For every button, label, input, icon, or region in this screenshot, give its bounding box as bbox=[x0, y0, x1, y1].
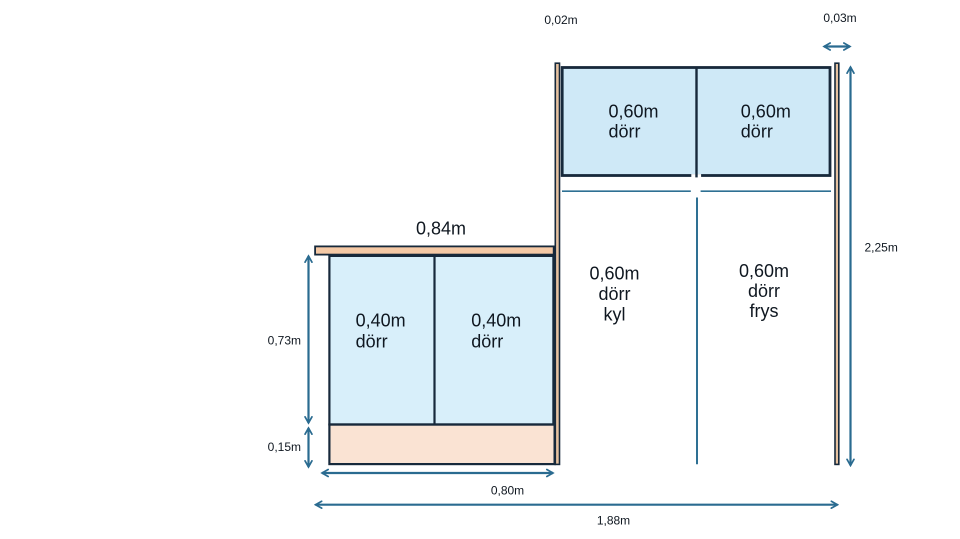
svg-text:dörr: dörr bbox=[609, 122, 641, 142]
svg-text:frys: frys bbox=[750, 301, 779, 321]
svg-text:0,60m: 0,60m bbox=[609, 101, 659, 121]
svg-text:0,73m: 0,73m bbox=[268, 333, 301, 347]
svg-text:0,40m: 0,40m bbox=[356, 311, 406, 331]
svg-text:0,80m: 0,80m bbox=[491, 484, 524, 498]
svg-text:0,84m: 0,84m bbox=[416, 219, 466, 239]
svg-text:dörr: dörr bbox=[471, 331, 503, 351]
svg-text:0,60m: 0,60m bbox=[741, 101, 791, 121]
svg-text:dörr: dörr bbox=[741, 122, 773, 142]
svg-text:0,03m: 0,03m bbox=[823, 11, 856, 25]
svg-text:dörr: dörr bbox=[748, 281, 780, 301]
svg-text:2,25m: 2,25m bbox=[865, 240, 898, 254]
svg-text:1,88m: 1,88m bbox=[597, 514, 630, 528]
svg-text:0,60m: 0,60m bbox=[589, 264, 639, 284]
svg-text:0,60m: 0,60m bbox=[739, 261, 789, 281]
svg-text:0,40m: 0,40m bbox=[471, 311, 521, 331]
svg-text:0,15m: 0,15m bbox=[268, 440, 301, 454]
svg-text:dörr: dörr bbox=[356, 331, 388, 351]
svg-text:0,02m: 0,02m bbox=[544, 13, 577, 27]
svg-text:dörr: dörr bbox=[598, 284, 630, 304]
svg-text:kyl: kyl bbox=[604, 305, 626, 325]
